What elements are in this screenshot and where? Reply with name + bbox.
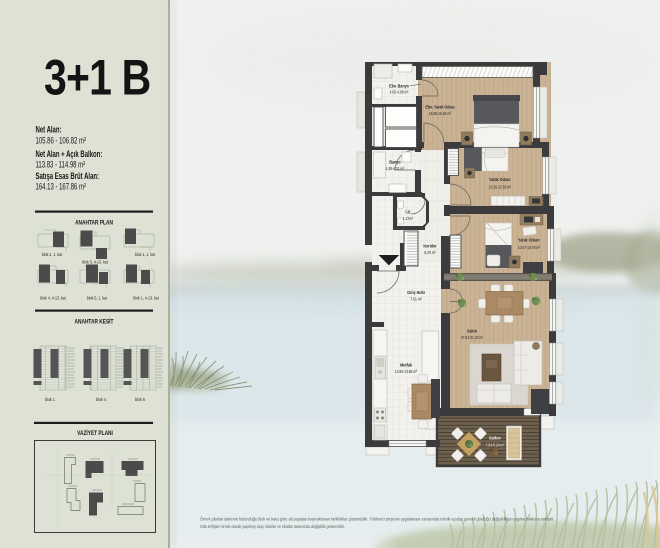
svg-text:Balkon: Balkon bbox=[489, 435, 501, 441]
svg-text:4.28-4.31 m²: 4.28-4.31 m² bbox=[386, 165, 405, 171]
svg-text:Net Alan:: Net Alan: bbox=[36, 124, 62, 135]
svg-text:27.84-31.33 m²: 27.84-31.33 m² bbox=[461, 334, 484, 340]
svg-text:1.27m²: 1.27m² bbox=[403, 215, 414, 221]
svg-text:15.08-15.84 m²: 15.08-15.84 m² bbox=[429, 110, 452, 116]
svg-text:blok 5, 1. kat: blok 5, 1. kat bbox=[87, 295, 108, 301]
svg-text:ANAHTAR PLAN: ANAHTAR PLAN bbox=[75, 220, 113, 227]
svg-text:Banyo: Banyo bbox=[389, 159, 401, 165]
svg-text:Mutfak: Mutfak bbox=[400, 362, 412, 368]
svg-text:ANAHTAR KESİT: ANAHTAR KESİT bbox=[75, 318, 114, 326]
svg-text:7.84-8.24 m²: 7.84-8.24 m² bbox=[486, 442, 505, 448]
svg-text:105.86 - 106.82 m²: 105.86 - 106.82 m² bbox=[36, 135, 87, 146]
svg-text:10.67-10.78 m²: 10.67-10.78 m² bbox=[518, 244, 541, 250]
svg-text:blok 4, 1. kat: blok 4, 1. kat bbox=[42, 252, 63, 258]
svg-text:blok 4, 4-13. kat: blok 4, 4-13. kat bbox=[40, 295, 66, 301]
svg-text:Örnek planlar dairenin bulundu: Örnek planlar dairenin bulunduğu blok ve… bbox=[200, 516, 554, 521]
svg-text:Oda tefrişleri örnek olarak ya: Oda tefrişleri örnek olarak yapılmış olu… bbox=[200, 524, 345, 529]
svg-text:blok 1, 1. kat: blok 1, 1. kat bbox=[135, 252, 156, 258]
svg-text:113.83 - 114.98 m²: 113.83 - 114.98 m² bbox=[36, 159, 86, 170]
svg-text:Yatak Odası:: Yatak Odası: bbox=[489, 176, 512, 182]
svg-text:4.05-4.08 m²: 4.05-4.08 m² bbox=[390, 89, 409, 95]
svg-text:8.29 m²: 8.29 m² bbox=[424, 249, 436, 255]
svg-text:Salon: Salon bbox=[467, 328, 477, 334]
svg-text:Giriş Holü: Giriş Holü bbox=[407, 289, 425, 295]
svg-text:Koridor: Koridor bbox=[423, 243, 437, 249]
svg-text:Satışa Esas Brüt Alan:: Satışa Esas Brüt Alan: bbox=[36, 171, 100, 182]
svg-text:164.13 - 167.86 m²: 164.13 - 167.86 m² bbox=[36, 181, 87, 192]
svg-text:İ.O: İ.O bbox=[406, 209, 411, 215]
svg-text:blok 1: blok 1 bbox=[45, 397, 56, 403]
svg-text:VAZİYET PLANI: VAZİYET PLANI bbox=[77, 429, 113, 437]
svg-text:Yatak Odası:: Yatak Odası: bbox=[518, 237, 541, 243]
svg-text:Net Alan + Açık Balkon:: Net Alan + Açık Balkon: bbox=[36, 149, 103, 160]
svg-text:10.26-10.55 m²: 10.26-10.55 m² bbox=[489, 184, 512, 190]
svg-text:blok 5, 4-13. kat: blok 5, 4-13. kat bbox=[82, 259, 108, 265]
svg-text:13.50-13.86 m²: 13.50-13.86 m² bbox=[395, 368, 418, 374]
svg-text:blok 4: blok 4 bbox=[96, 397, 107, 403]
svg-text:blok 1, 4-13. kat: blok 1, 4-13. kat bbox=[133, 295, 159, 301]
svg-text:Ebv. Yatak Odası: Ebv. Yatak Odası bbox=[425, 104, 454, 110]
svg-text:7.61 m²: 7.61 m² bbox=[410, 296, 422, 302]
svg-text:Ebv. Banyo: Ebv. Banyo bbox=[389, 83, 409, 89]
svg-text:3+1 B: 3+1 B bbox=[44, 50, 150, 106]
svg-text:blok 5: blok 5 bbox=[135, 397, 146, 403]
